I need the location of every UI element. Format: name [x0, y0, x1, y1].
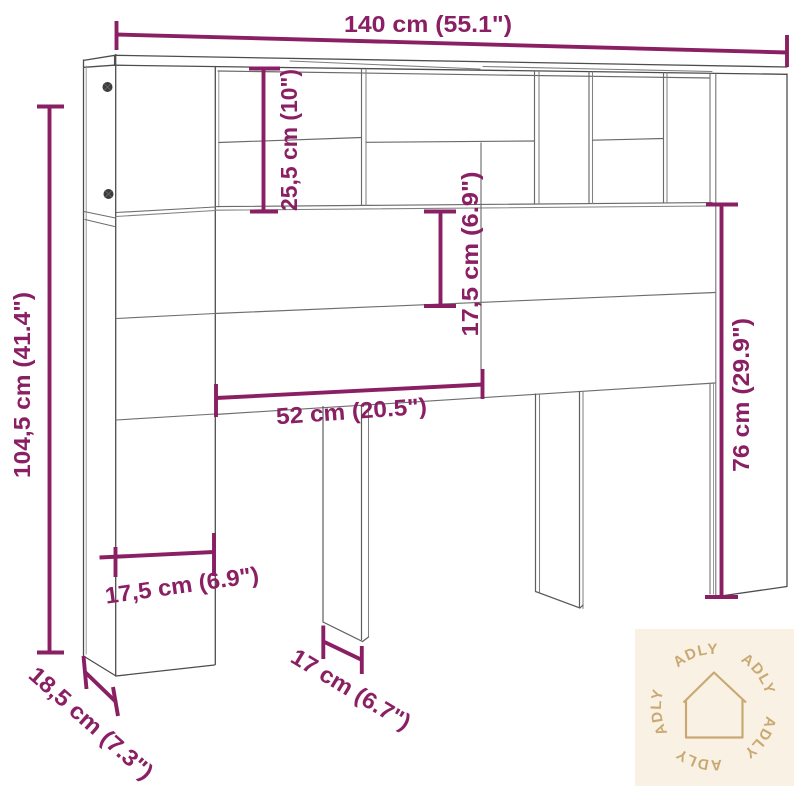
svg-text:25,5 cm (10"): 25,5 cm (10")	[276, 69, 302, 211]
svg-text:140 cm (55.1"): 140 cm (55.1")	[344, 11, 512, 37]
svg-text:104,5 cm (41.4"): 104,5 cm (41.4")	[9, 292, 35, 478]
svg-text:76 cm (29.9"): 76 cm (29.9")	[728, 318, 754, 472]
svg-text:17,5 cm (6.9"): 17,5 cm (6.9")	[457, 172, 483, 337]
